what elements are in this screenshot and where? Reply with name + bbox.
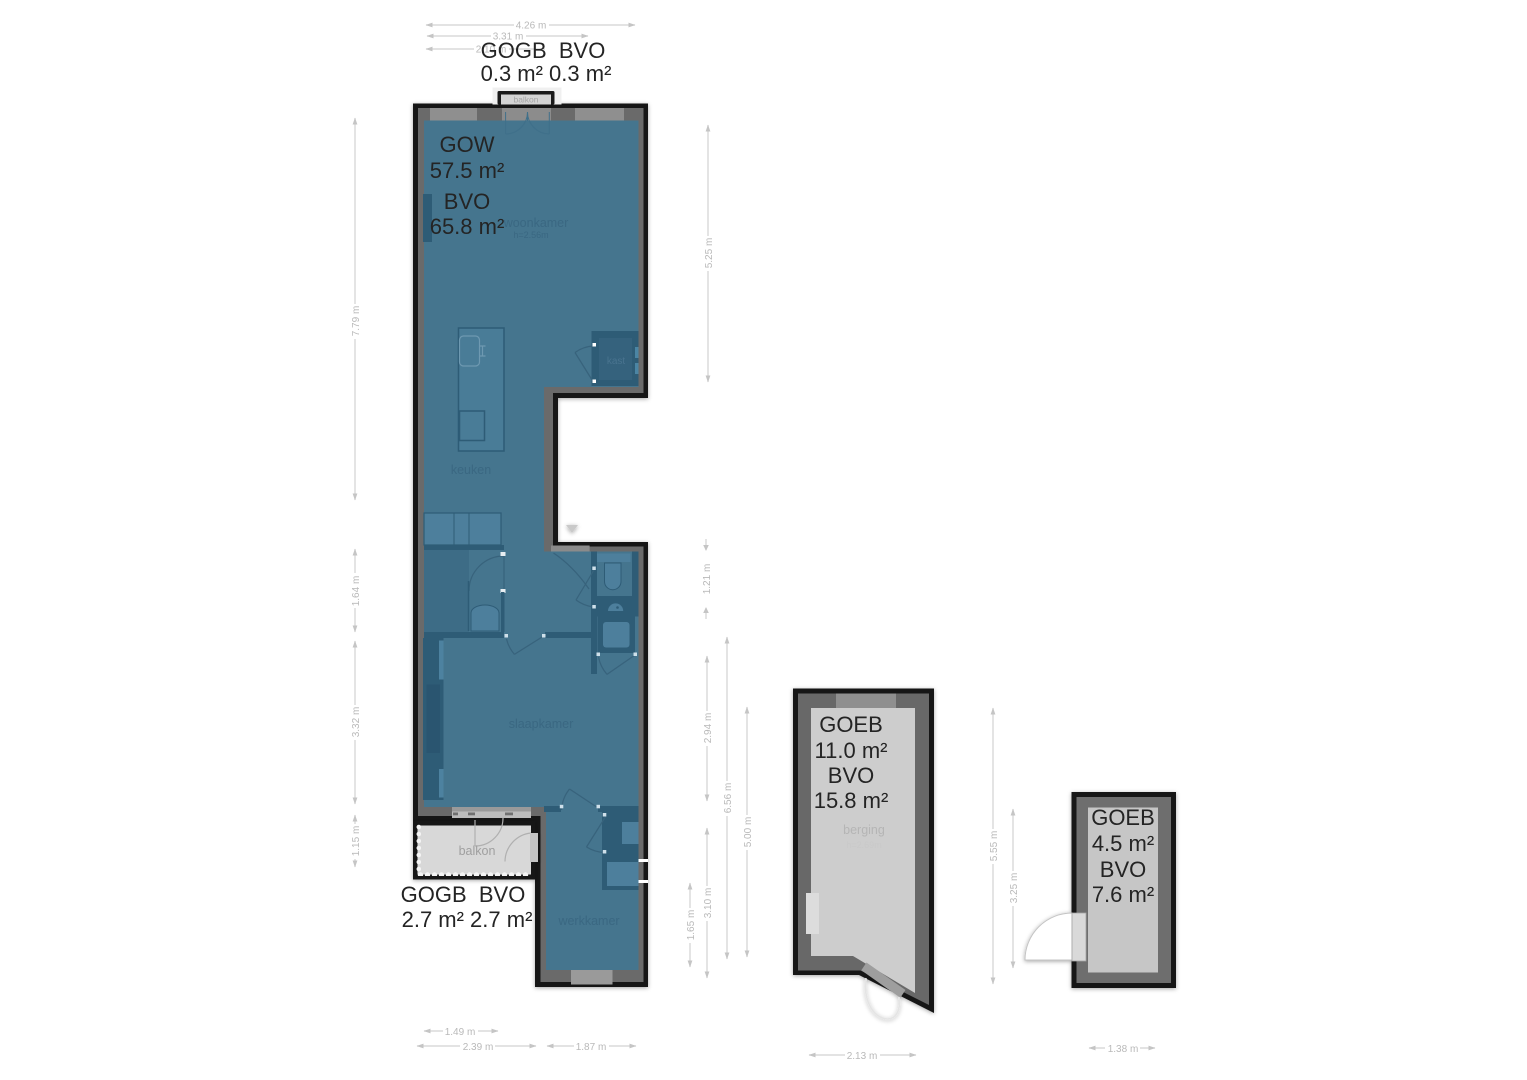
svg-text:1.65 m: 1.65 m [686,910,697,941]
svg-text:3.10 m: 3.10 m [703,888,714,919]
svg-text:5.00 m: 5.00 m [743,817,754,848]
svg-text:BVO: BVO [444,189,490,214]
svg-text:balkon: balkon [513,95,538,105]
svg-text:kast: kast [607,356,626,367]
svg-text:slaapkamer: slaapkamer [509,717,574,731]
svg-text:keuken: keuken [451,463,491,477]
svg-text:65.8 m²: 65.8 m² [430,214,505,239]
svg-text:GOW: GOW [440,132,495,157]
svg-text:GOEB: GOEB [1091,805,1155,830]
svg-text:2.94 m: 2.94 m [703,713,714,744]
svg-text:7.79 m: 7.79 m [351,306,362,337]
svg-text:h=2.69m: h=2.69m [846,840,881,850]
svg-text:h=2.56m: h=2.56m [513,230,548,240]
svg-text:3.32 m: 3.32 m [351,707,362,738]
svg-text:1.15 m: 1.15 m [351,826,362,857]
svg-text:berging: berging [843,823,885,837]
svg-text:werkkamer: werkkamer [557,914,619,928]
svg-text:2.13 m: 2.13 m [847,1051,878,1062]
svg-text:GOGB BVO: GOGB BVO [401,882,526,907]
svg-text:0.3 m² 0.3 m²: 0.3 m² 0.3 m² [481,61,612,86]
svg-text:6.56 m: 6.56 m [723,783,734,814]
svg-text:1.21 m: 1.21 m [702,564,713,595]
svg-text:5.25 m: 5.25 m [704,238,715,269]
svg-text:BVO: BVO [828,763,874,788]
svg-text:BVO: BVO [1100,857,1146,882]
svg-text:57.5 m²: 57.5 m² [430,158,505,183]
svg-text:GOGB BVO: GOGB BVO [481,38,606,63]
svg-text:woonkamer: woonkamer [503,216,569,230]
svg-text:2.7 m² 2.7 m²: 2.7 m² 2.7 m² [402,907,533,932]
svg-text:1.49 m: 1.49 m [445,1027,476,1038]
svg-text:4.26 m: 4.26 m [516,21,547,32]
svg-text:3.25 m: 3.25 m [1009,873,1020,904]
svg-text:GOEB: GOEB [819,712,883,737]
svg-text:11.0 m²: 11.0 m² [815,738,888,763]
svg-text:1.38 m: 1.38 m [1108,1044,1139,1055]
svg-text:5.55 m: 5.55 m [989,831,1000,862]
svg-text:7.6 m²: 7.6 m² [1092,882,1154,907]
svg-text:balkon: balkon [459,844,496,858]
svg-text:4.5 m²: 4.5 m² [1092,831,1154,856]
svg-text:2.39 m: 2.39 m [463,1042,494,1053]
svg-text:15.8 m²: 15.8 m² [814,788,889,813]
svg-text:1.87 m: 1.87 m [576,1042,607,1053]
svg-text:1.64 m: 1.64 m [351,576,362,607]
